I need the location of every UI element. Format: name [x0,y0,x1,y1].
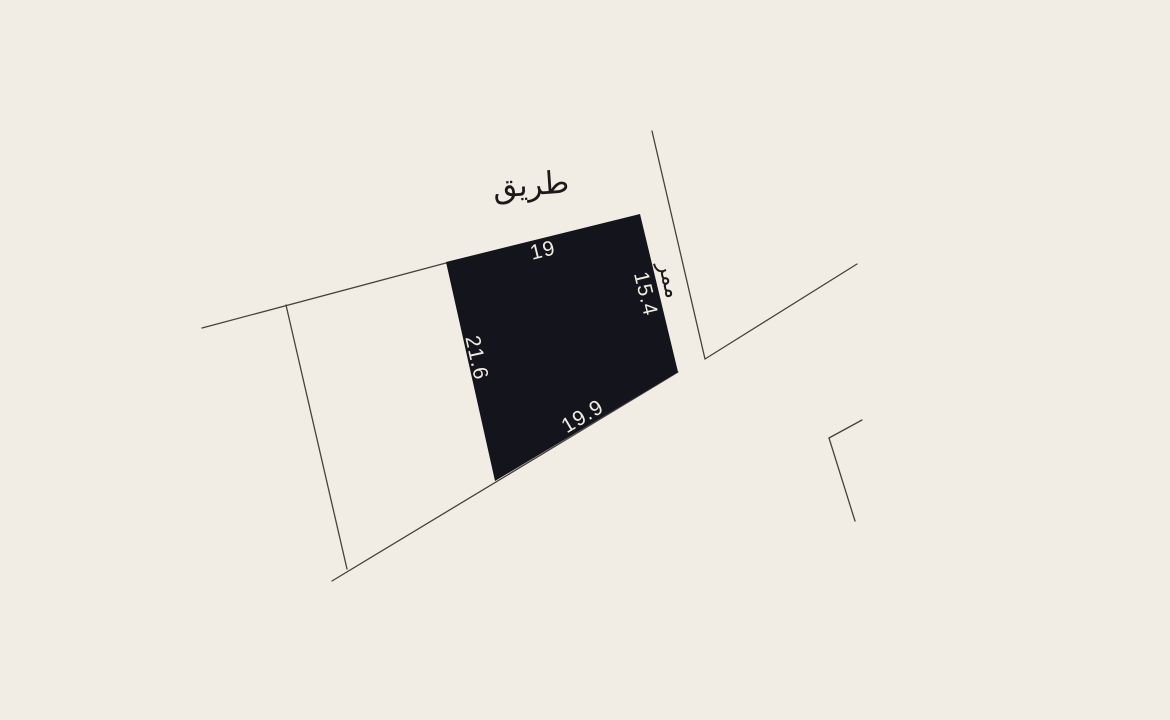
road-boundary-line [202,263,446,328]
east-corner-line-top [829,420,862,438]
survey-drawing [0,0,1170,720]
east-corner-line-side [829,438,855,521]
neighbor-divider-line [286,305,347,569]
plot-survey-sketch: 19 15.4 21.6 19.9 طريق ممر [0,0,1170,720]
road-label: طريق [492,164,571,205]
passage-east-line [705,264,857,359]
